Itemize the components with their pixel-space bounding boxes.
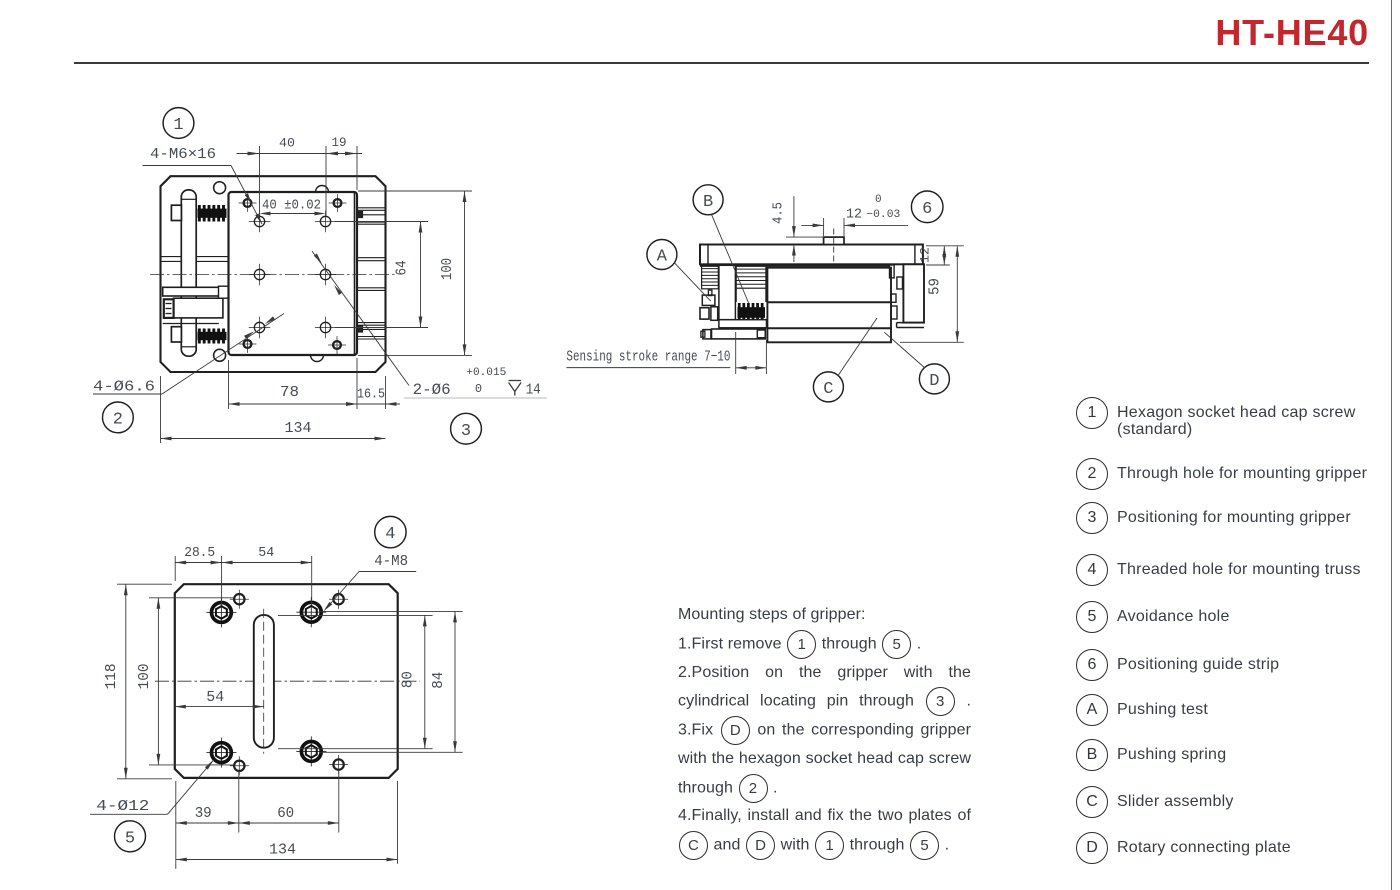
svg-text:2-Ø6: 2-Ø6 bbox=[413, 381, 451, 399]
svg-text:12: 12 bbox=[918, 247, 933, 263]
svg-text:59: 59 bbox=[927, 278, 944, 295]
svg-text:40 ±0.02: 40 ±0.02 bbox=[262, 198, 321, 214]
svg-text:3: 3 bbox=[461, 422, 471, 441]
svg-text:+0.015: +0.015 bbox=[466, 367, 506, 379]
svg-text:−0.03: −0.03 bbox=[866, 209, 900, 221]
svg-text:B: B bbox=[703, 193, 713, 212]
svg-text:78: 78 bbox=[280, 384, 299, 401]
svg-text:60: 60 bbox=[277, 805, 294, 822]
svg-text:84: 84 bbox=[430, 672, 447, 689]
svg-text:C: C bbox=[823, 380, 833, 399]
svg-text:16.5: 16.5 bbox=[357, 387, 385, 403]
svg-text:1: 1 bbox=[173, 116, 183, 135]
svg-text:134: 134 bbox=[269, 842, 296, 859]
svg-text:2: 2 bbox=[113, 411, 123, 430]
svg-text:40: 40 bbox=[279, 137, 295, 151]
svg-text:A: A bbox=[657, 248, 668, 267]
svg-text:134: 134 bbox=[285, 420, 312, 437]
svg-text:4-M8: 4-M8 bbox=[374, 553, 408, 570]
svg-text:54: 54 bbox=[206, 689, 224, 706]
svg-text:64: 64 bbox=[394, 261, 411, 276]
svg-text:4.5: 4.5 bbox=[770, 202, 786, 224]
svg-text:14: 14 bbox=[526, 382, 541, 399]
svg-text:Sensing stroke range 7−10: Sensing stroke range 7−10 bbox=[566, 349, 730, 366]
svg-text:80: 80 bbox=[400, 671, 417, 688]
svg-text:D: D bbox=[929, 372, 939, 391]
svg-text:19: 19 bbox=[332, 136, 347, 150]
svg-text:5: 5 bbox=[125, 829, 135, 848]
svg-text:6: 6 bbox=[922, 200, 932, 219]
svg-text:100: 100 bbox=[439, 258, 456, 280]
svg-text:100: 100 bbox=[136, 663, 153, 689]
svg-text:4-M6×16: 4-M6×16 bbox=[150, 146, 216, 163]
svg-text:118: 118 bbox=[103, 663, 120, 689]
svg-text:4: 4 bbox=[385, 525, 395, 544]
svg-text:12: 12 bbox=[846, 207, 862, 223]
svg-text:0: 0 bbox=[875, 194, 882, 206]
svg-text:28.5: 28.5 bbox=[184, 545, 215, 561]
svg-text:39: 39 bbox=[195, 805, 212, 822]
svg-text:0: 0 bbox=[475, 382, 482, 396]
svg-text:54: 54 bbox=[258, 545, 274, 561]
svg-text:4-Ø12: 4-Ø12 bbox=[96, 798, 149, 815]
svg-text:4-Ø6.6: 4-Ø6.6 bbox=[93, 379, 155, 396]
